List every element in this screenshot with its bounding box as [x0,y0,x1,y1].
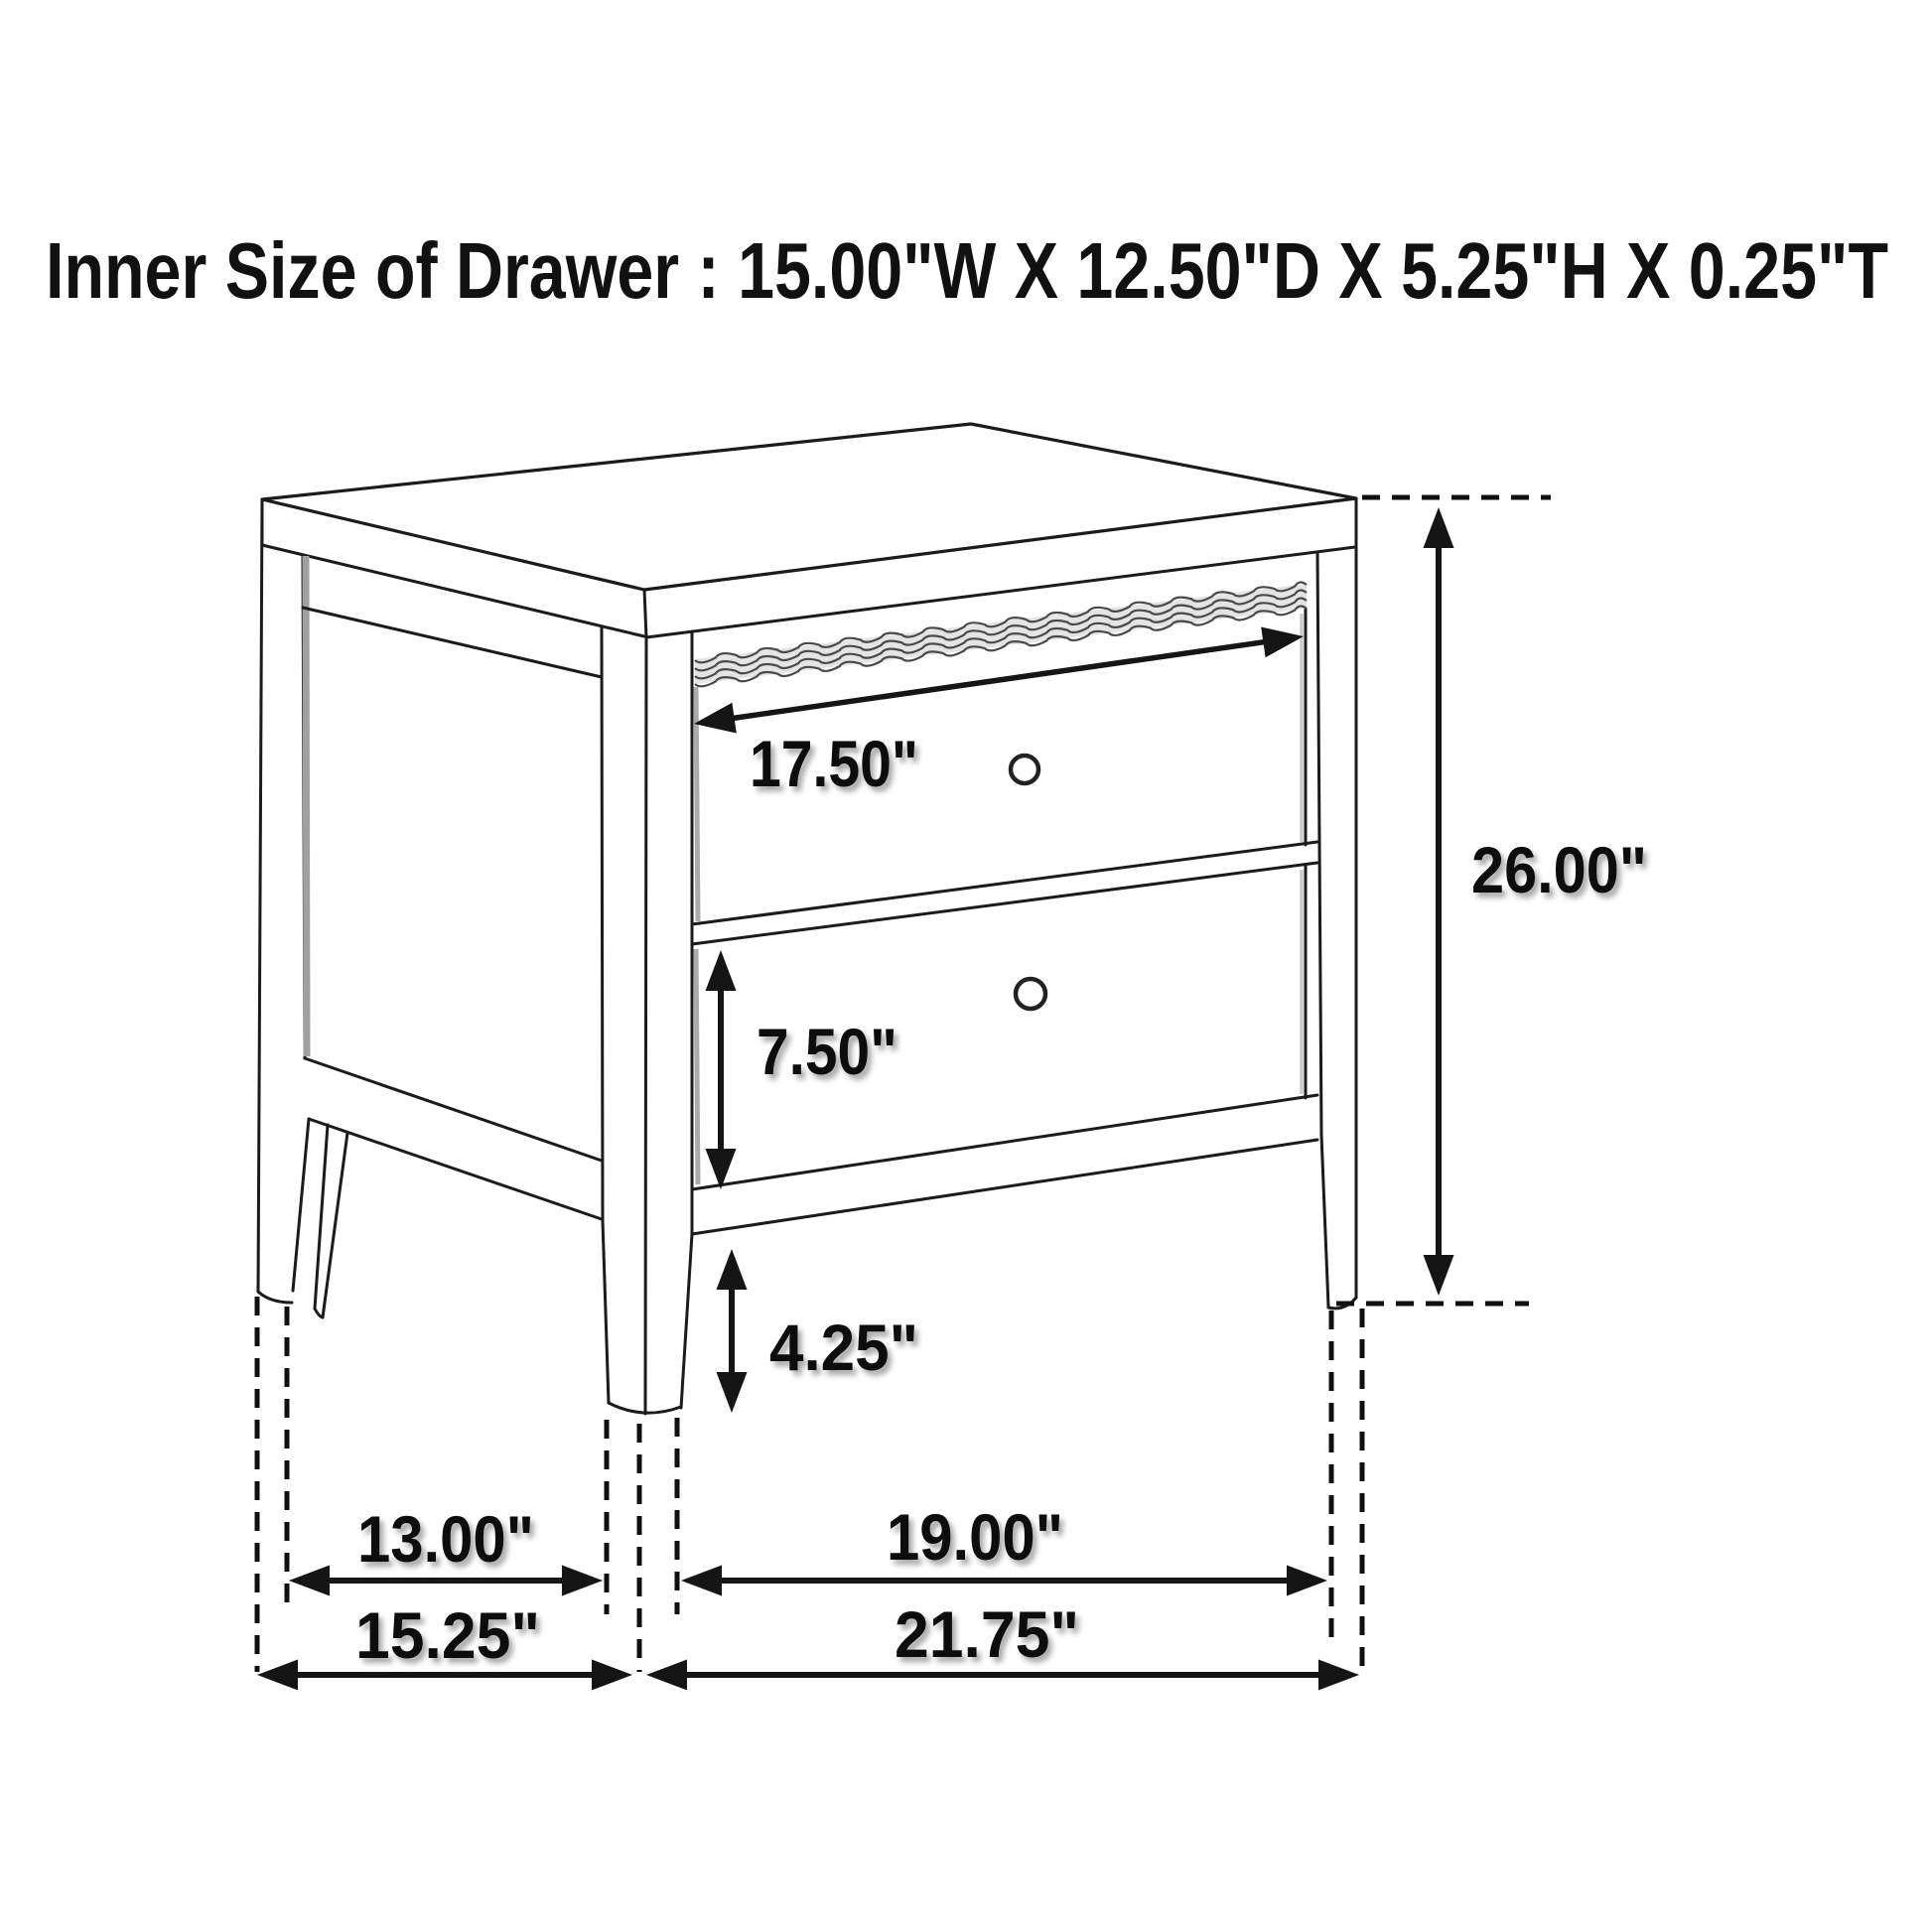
svg-text:21.75": 21.75" [895,1597,1079,1671]
svg-text:15.25": 15.25" [355,1598,540,1672]
svg-text:13.00": 13.00" [357,1502,534,1576]
svg-text:19.00": 19.00" [887,1500,1063,1574]
svg-text:Inner Size of Drawer : 15.00"W: Inner Size of Drawer : 15.00"W X 12.50"D… [46,226,1888,315]
svg-text:7.50": 7.50" [757,1015,897,1088]
svg-text:17.50": 17.50" [750,727,918,800]
svg-text:4.25": 4.25" [769,1311,918,1384]
svg-text:26.00": 26.00" [1471,833,1647,906]
